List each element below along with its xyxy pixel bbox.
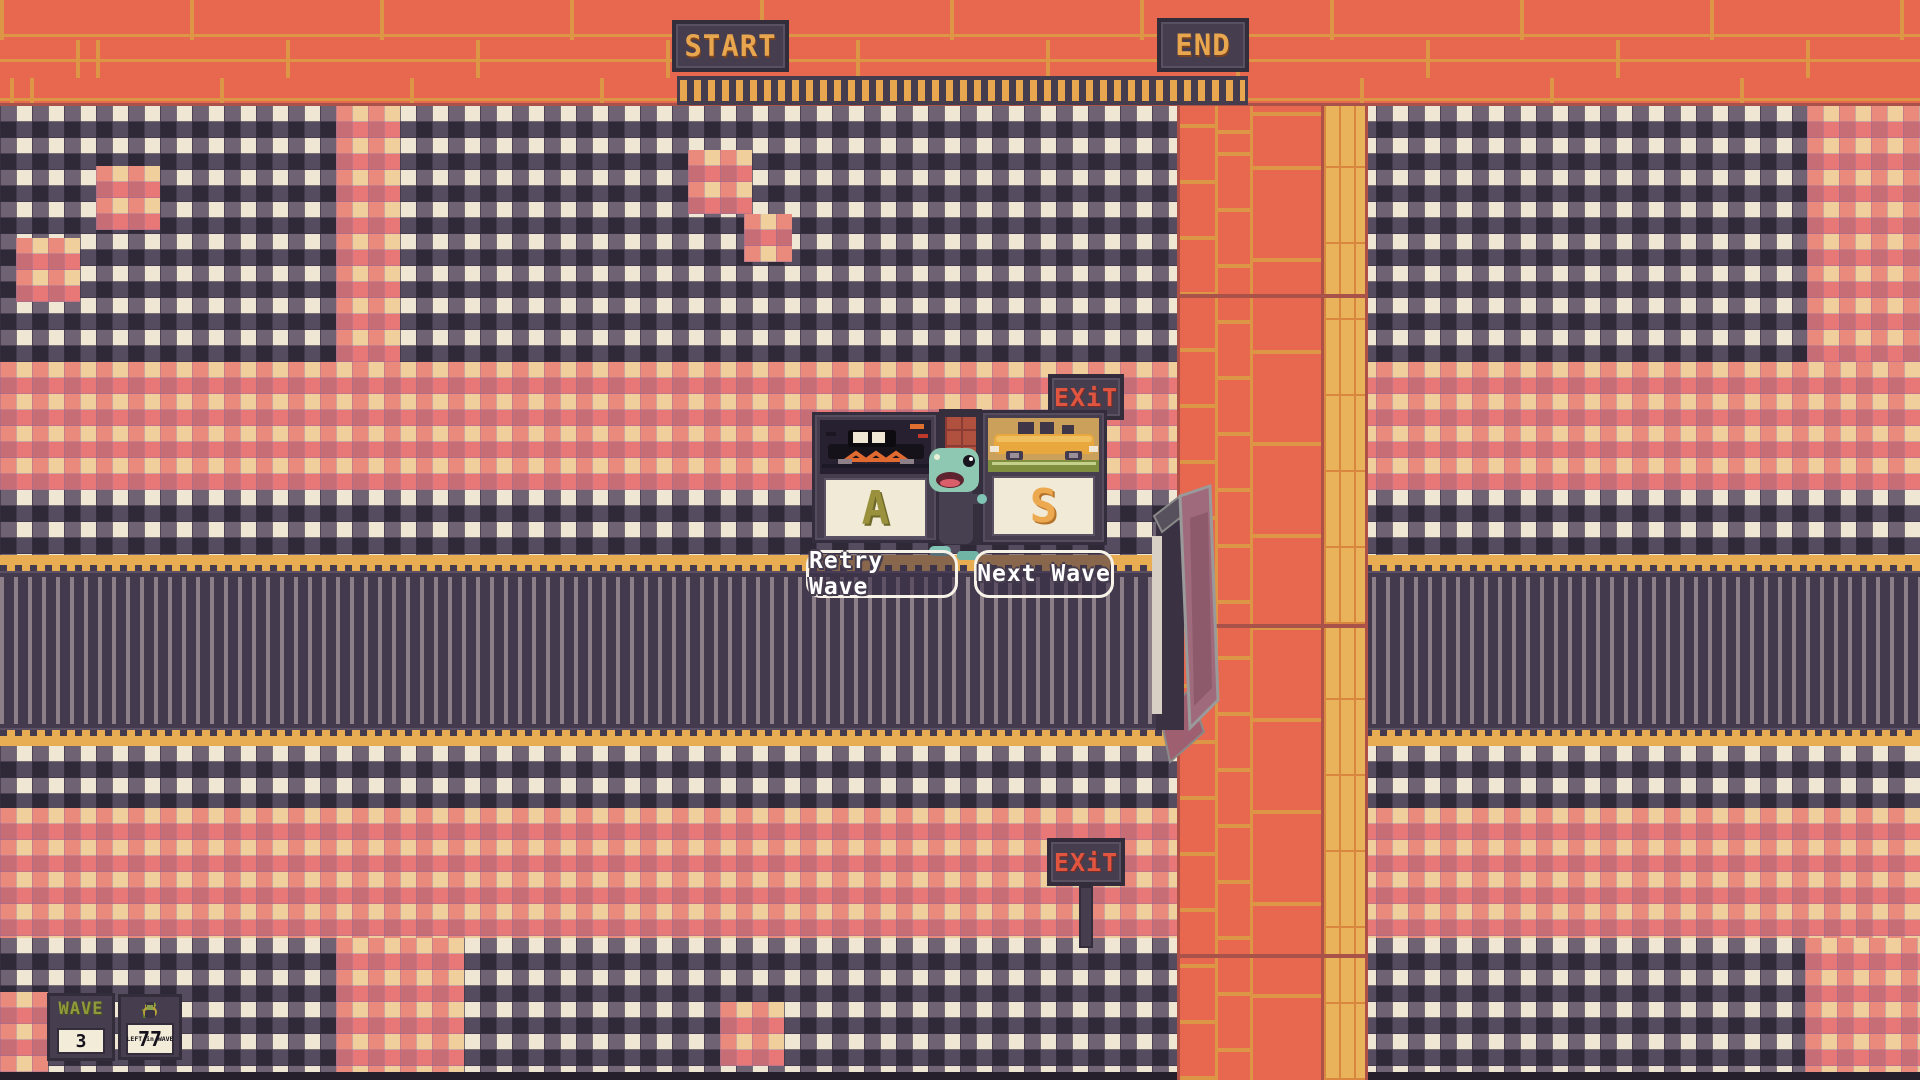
gate-inner-light bbox=[1152, 536, 1162, 714]
mosaic-patch bbox=[744, 214, 792, 262]
bottom-edge-strip bbox=[0, 1072, 1920, 1080]
road-border-bottom bbox=[0, 730, 1920, 746]
hud-enemy-sprites bbox=[121, 999, 179, 1021]
hud-wave-number: 3 bbox=[57, 1028, 105, 1054]
start-sign: START bbox=[672, 20, 789, 72]
hud-wave-panel: WAVE 3 bbox=[47, 993, 115, 1061]
start-sign-label: START bbox=[684, 29, 776, 63]
mosaic-patch bbox=[688, 150, 752, 214]
action-card-yellow-car[interactable]: S bbox=[980, 410, 1107, 545]
mosaic-patch bbox=[336, 106, 400, 362]
mosaic-band-below-road bbox=[0, 746, 1920, 808]
frog-hand bbox=[977, 494, 987, 504]
mosaic-patch bbox=[1807, 106, 1920, 362]
hud-remaining-label: LEFT in WAVE bbox=[127, 1036, 174, 1043]
road-end-gate bbox=[1152, 478, 1232, 778]
game-viewport: START END EXiT EXiT bbox=[0, 0, 1920, 1080]
hud-wave-label: WAVE bbox=[50, 999, 112, 1019]
mosaic-band-pink-lower bbox=[0, 808, 1920, 938]
exit-sign-lower-label: EXiT bbox=[1054, 848, 1118, 877]
end-sign: END bbox=[1157, 18, 1249, 72]
hotkey-label-a: A bbox=[824, 478, 927, 538]
mosaic-patch bbox=[16, 238, 80, 302]
hud-remaining-panel: 77 LEFT in WAVE bbox=[118, 994, 182, 1060]
mosaic-patch bbox=[336, 938, 464, 1072]
exit-sign-upper-label: EXiT bbox=[1054, 383, 1118, 412]
road-stripes bbox=[0, 571, 1920, 730]
mosaic-band-bottom bbox=[0, 938, 1920, 1080]
mosaic-patch bbox=[96, 166, 160, 230]
frog-eye bbox=[963, 455, 975, 467]
hotkey-label-s: S bbox=[992, 476, 1095, 536]
enemy-crossing-strip bbox=[677, 76, 1248, 105]
exit-sign-post bbox=[1079, 886, 1093, 948]
enemy-gangster-icon bbox=[142, 1001, 158, 1019]
mosaic-band-upper bbox=[0, 106, 1920, 362]
frog-eye-glint bbox=[969, 457, 973, 461]
road-track bbox=[0, 555, 1920, 746]
action-card-black-limo[interactable]: A bbox=[812, 412, 939, 543]
retry-wave-button[interactable]: Retry Wave bbox=[806, 550, 958, 598]
crossing-stripes bbox=[680, 80, 1245, 101]
exit-sign-lower: EXiT bbox=[1047, 838, 1125, 886]
hud-remaining-box: 77 LEFT in WAVE bbox=[126, 1023, 174, 1055]
mosaic-patch bbox=[720, 1002, 784, 1066]
mosaic-patch bbox=[0, 992, 48, 1072]
mosaic-patch bbox=[1805, 938, 1920, 1072]
end-sign-label: END bbox=[1175, 28, 1230, 62]
yellow-car-image bbox=[988, 418, 1099, 472]
black-limo-image bbox=[820, 420, 931, 474]
frog-spot bbox=[934, 454, 940, 460]
frog-tongue bbox=[940, 479, 960, 487]
next-wave-button[interactable]: Next Wave bbox=[974, 550, 1114, 598]
frog-character bbox=[923, 446, 989, 562]
